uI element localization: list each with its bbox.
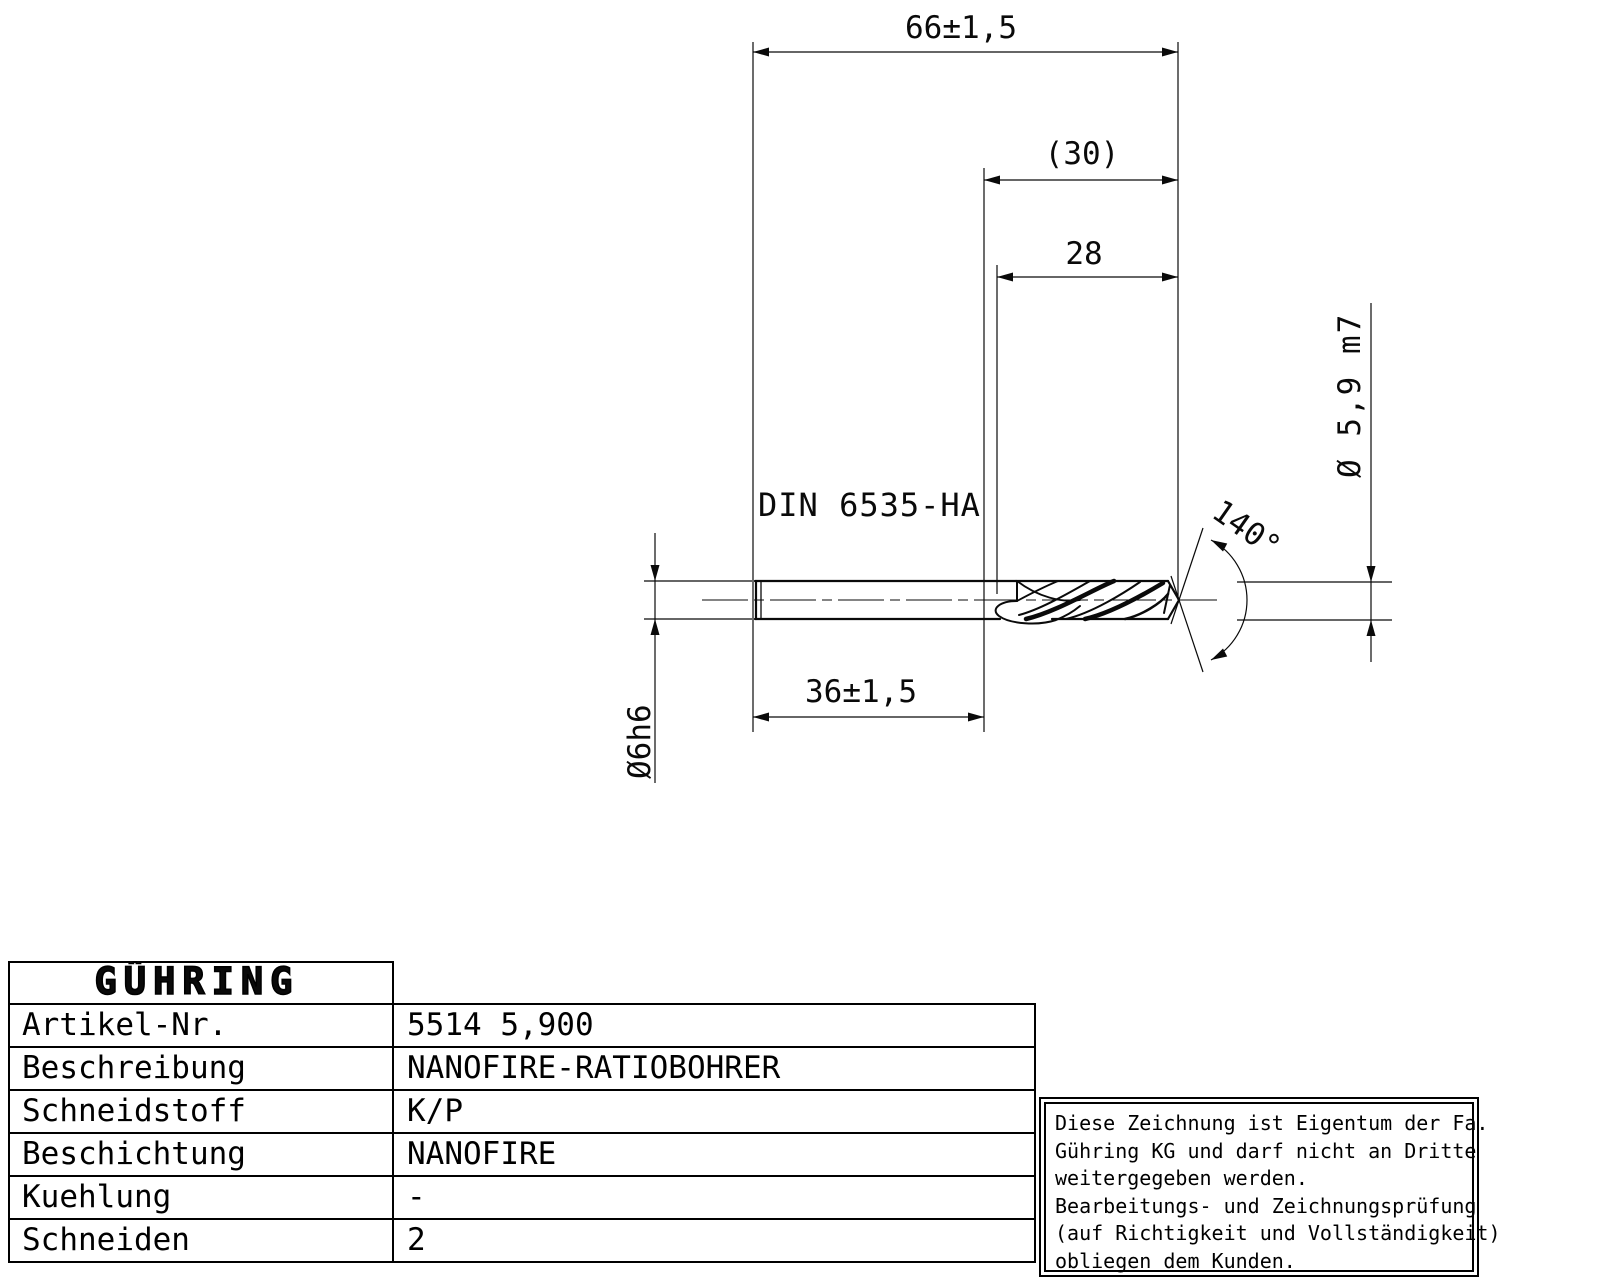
note-line: Diese Zeichnung ist Eigentum der Fa. [1055,1110,1472,1138]
note-line: Bearbeitungs- und Zeichnungsprüfung [1055,1193,1472,1221]
row-label: Schneiden [10,1220,394,1261]
dim-point-angle-label: 140° [1205,493,1287,565]
note-line: (auf Richtigkeit und Vollständigkeit) [1055,1220,1472,1248]
dim-shank-diameter-label: Ø6h6 [622,704,658,779]
dim-reference-label: (30) [1045,136,1120,172]
row-label: Beschichtung [10,1134,394,1175]
dim-cutting-diameter-label: Ø 5,9 m7 [1332,313,1368,478]
row-label: Schneidstoff [10,1091,394,1132]
dim-shank-length-label: 36±1,5 [805,674,917,710]
table-row: Kuehlung - [8,1175,1036,1220]
row-label: Artikel-Nr. [10,1005,394,1046]
brand-logo-cell: GÜHRING [8,961,394,1005]
table-row: Beschreibung NANOFIRE-RATIOBOHRER [8,1046,1036,1091]
table-row: Schneiden 2 [8,1218,1036,1263]
table-row: Artikel-Nr. 5514 5,900 [8,1003,1036,1048]
part-data-table: GÜHRING Artikel-Nr. 5514 5,900 Beschreib… [8,961,1036,1263]
ownership-note-box: Diese Zeichnung ist Eigentum der Fa. Güh… [1039,1097,1479,1277]
row-label: Kuehlung [10,1177,394,1218]
technical-drawing-page: 66±1,5 (30) 28 DIN 6535-HA 36±1,5 Ø6h6 Ø… [0,0,1600,1280]
table-row: Beschichtung NANOFIRE [8,1132,1036,1177]
row-value: 2 [394,1220,1034,1261]
dim-overall-length-label: 66±1,5 [905,10,1017,46]
brand-logo: GÜHRING [8,961,386,1001]
drill-drawing: 66±1,5 (30) 28 DIN 6535-HA 36±1,5 Ø6h6 Ø… [0,0,1600,950]
drill-outline [755,581,1179,623]
table-row: Schneidstoff K/P [8,1089,1036,1134]
note-line: Gühring KG und darf nicht an Dritte [1055,1138,1472,1166]
extension-lines [644,42,1392,783]
row-value: NANOFIRE [394,1134,1034,1175]
row-label: Beschreibung [10,1048,394,1089]
row-value: - [394,1177,1034,1218]
standard-label: DIN 6535-HA [758,486,981,524]
row-value: K/P [394,1091,1034,1132]
row-value: 5514 5,900 [394,1005,1034,1046]
note-line: obliegen dem Kunden. [1055,1248,1472,1276]
dim-flute-length-label: 28 [1065,236,1102,272]
ownership-note-inner: Diese Zeichnung ist Eigentum der Fa. Güh… [1044,1102,1474,1272]
row-value: NANOFIRE-RATIOBOHRER [394,1048,1034,1089]
note-line: weitergegeben werden. [1055,1165,1472,1193]
brand-logo-text: GÜHRING [95,961,300,1001]
